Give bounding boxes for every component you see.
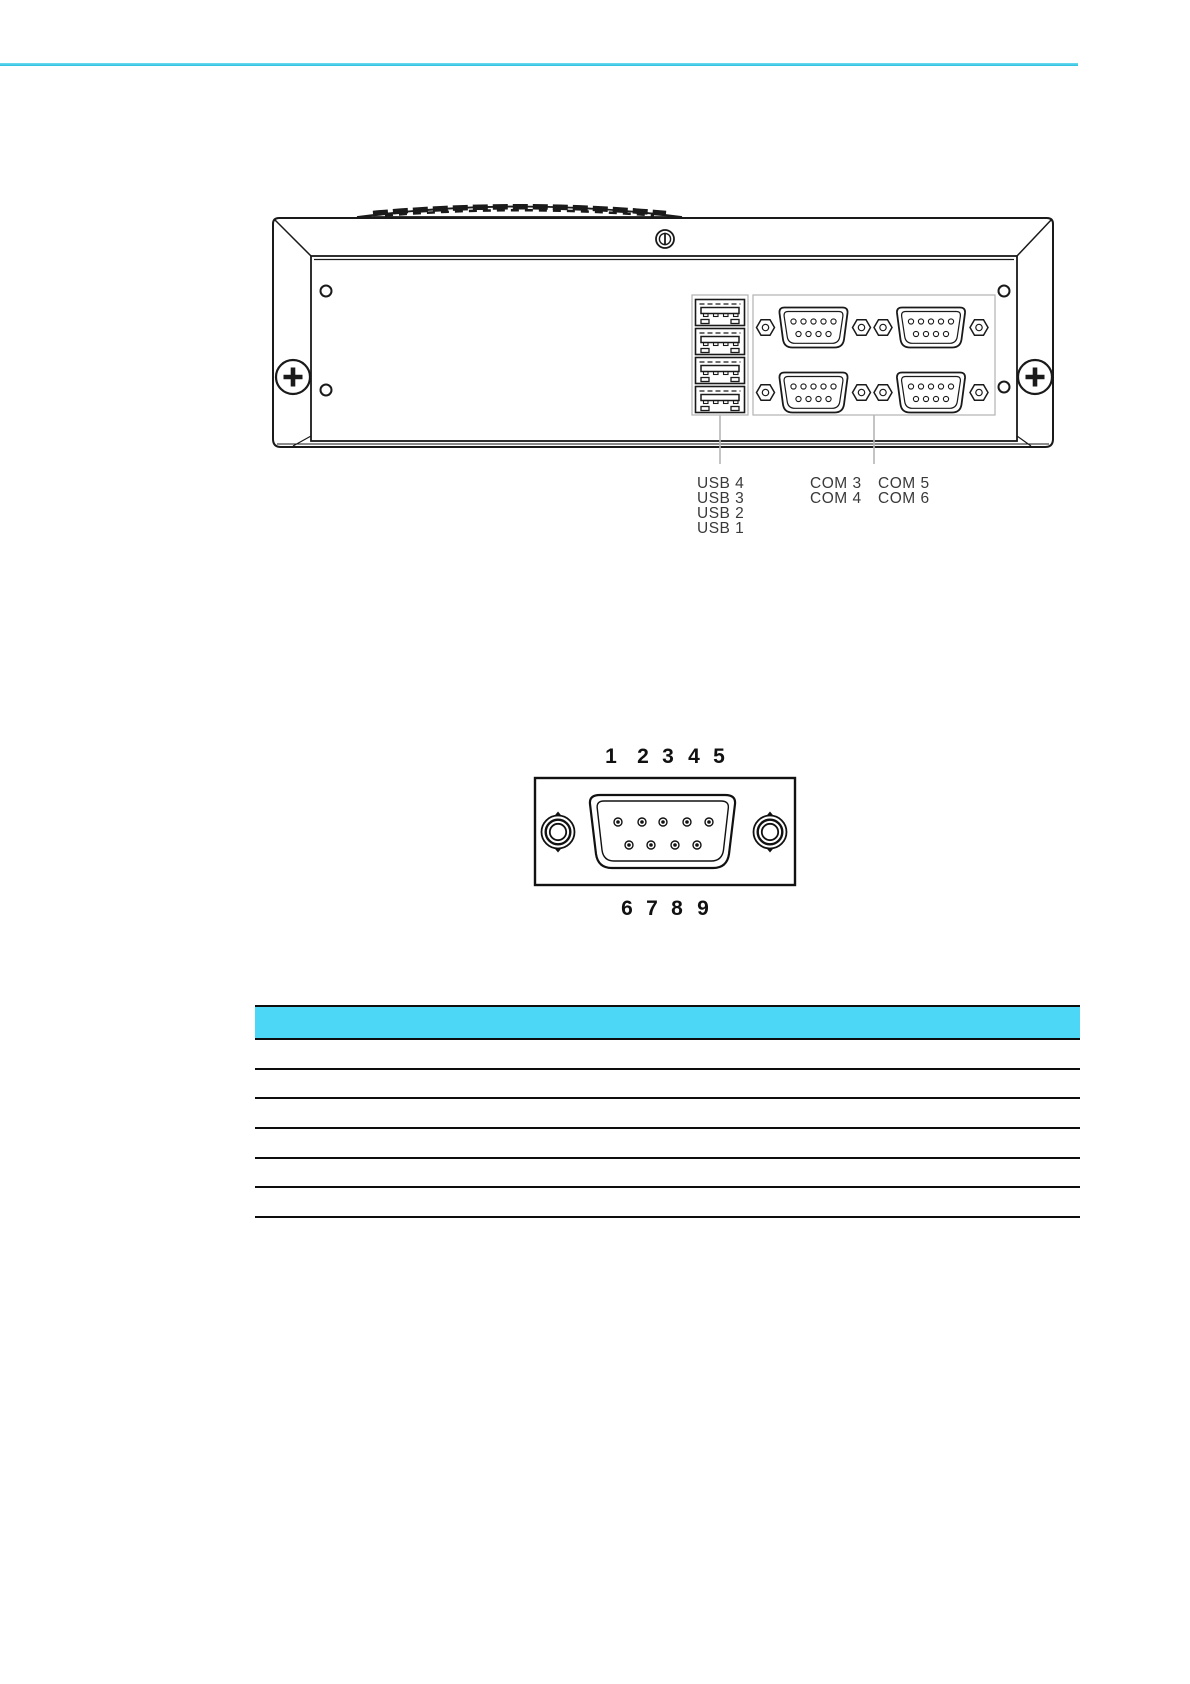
pin-number-9: 9 bbox=[697, 897, 709, 920]
document-page: USB 4 USB 3 USB 2 USB 1 COM 3 COM 4 COM … bbox=[0, 0, 1190, 1684]
pin-number-8: 8 bbox=[671, 897, 683, 920]
db9-pinout-figure: 1 2 3 4 5 bbox=[470, 690, 800, 935]
header-rule bbox=[0, 63, 1078, 66]
pin-number-5: 5 bbox=[713, 745, 725, 768]
side-screw-right bbox=[1018, 360, 1052, 394]
table-header-row bbox=[255, 1005, 1080, 1040]
com-label-4: COM 4 bbox=[810, 490, 862, 507]
usb-port-2 bbox=[696, 358, 745, 384]
pin-number-4: 4 bbox=[688, 745, 700, 768]
table-row bbox=[255, 1159, 1080, 1189]
pin-number-2: 2 bbox=[637, 745, 649, 768]
usb-port-3 bbox=[696, 329, 745, 355]
pin-number-3: 3 bbox=[662, 745, 674, 768]
table-row bbox=[255, 1099, 1080, 1129]
table-row bbox=[255, 1188, 1080, 1218]
com-label-6: COM 6 bbox=[878, 490, 930, 507]
rear-panel-figure: USB 4 USB 3 USB 2 USB 1 COM 3 COM 4 COM … bbox=[245, 180, 1065, 535]
usb-port-1 bbox=[696, 387, 745, 413]
db9-shell bbox=[590, 795, 735, 868]
side-screw-left bbox=[276, 360, 310, 394]
pin-number-6: 6 bbox=[621, 897, 633, 920]
usb-port-group bbox=[692, 295, 748, 415]
table-row bbox=[255, 1070, 1080, 1100]
table-row bbox=[255, 1129, 1080, 1159]
fan-vent bbox=[357, 207, 682, 218]
usb-port-4 bbox=[696, 300, 745, 326]
pin-number-1: 1 bbox=[605, 745, 617, 768]
table-row bbox=[255, 1040, 1080, 1070]
pin-definition-table bbox=[255, 1005, 1080, 1218]
usb-label-1: USB 1 bbox=[697, 520, 744, 535]
top-thumbscrew bbox=[656, 230, 674, 248]
pin-number-7: 7 bbox=[646, 897, 658, 920]
